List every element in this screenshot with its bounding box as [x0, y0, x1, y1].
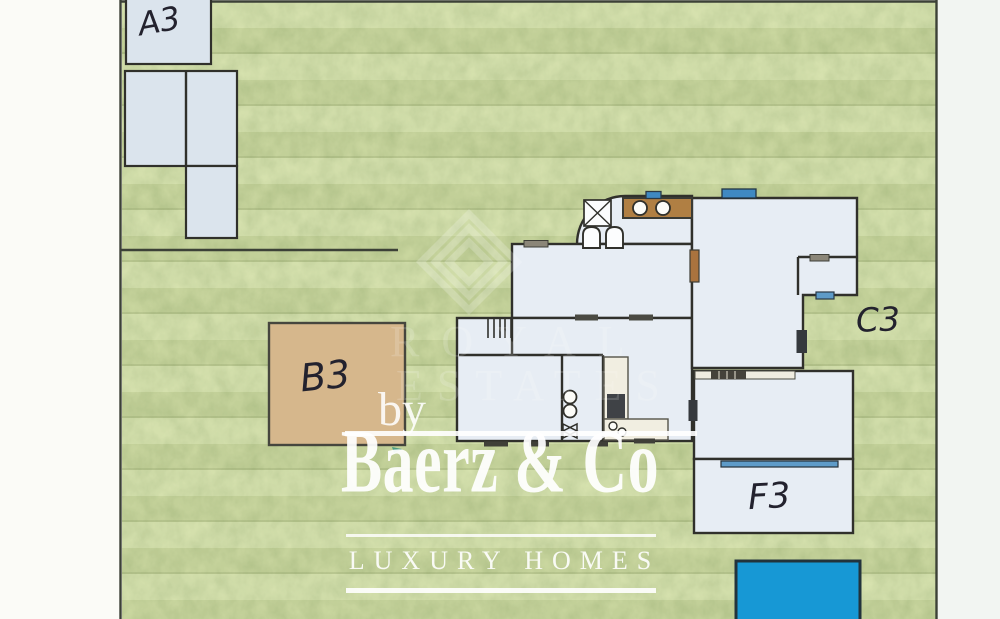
window-marker: [722, 189, 756, 198]
door-marker: [797, 330, 808, 353]
door-hatch-marker: [711, 371, 746, 380]
watermark-rule-bottom: [346, 588, 656, 593]
window-marker: [646, 192, 661, 199]
watermark-tagline: LUXURY HOMES: [330, 546, 670, 576]
scanned-site-plan: A3 B3 C3 F3 ROYAL ESTATES by Baerz & Co …: [0, 0, 1000, 619]
arch-column-icon: [583, 227, 600, 248]
unit-label-f3: F3: [747, 476, 791, 518]
swimming-pool: [736, 561, 860, 619]
door-hatch-marker: [810, 255, 829, 262]
house-lower-wing: [694, 371, 853, 459]
house-living-room: [512, 244, 692, 318]
watermark-brand: Baerz & Co: [330, 403, 670, 522]
unit-label-a3: A3: [135, 0, 183, 43]
window-hatch-marker: [524, 241, 548, 248]
floor-plan: [0, 0, 1000, 619]
unit-label-b3: B3: [298, 351, 353, 400]
outbuilding-lower: [186, 166, 237, 238]
arch-column-icon: [606, 227, 623, 248]
window-marker: [816, 292, 834, 299]
door-marker: [689, 400, 698, 421]
counter-sink-icon: [633, 201, 647, 215]
unit-label-c3: C3: [855, 299, 900, 340]
royal-estates-logo-watermark: [421, 214, 517, 310]
door-marker: [690, 250, 699, 282]
house-right-wing: [692, 198, 857, 368]
outbuilding-middle: [125, 71, 237, 166]
counter-sink-icon: [656, 201, 670, 215]
window-marker: [721, 461, 838, 467]
watermark-rule-middle: [346, 534, 656, 537]
